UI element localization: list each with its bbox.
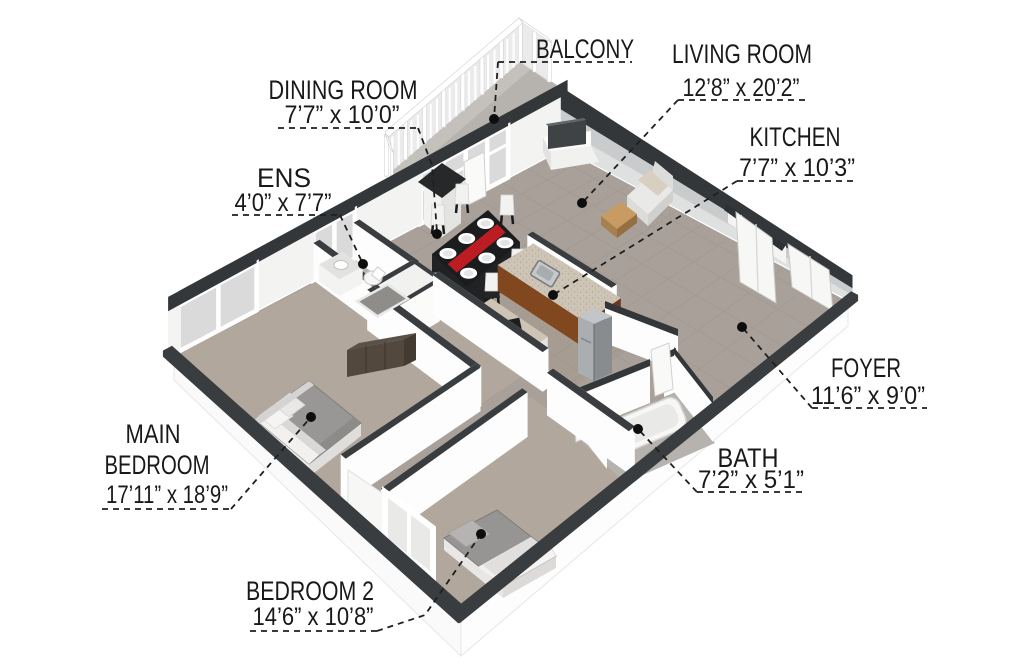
svg-text:17’11” x 18’9”: 17’11” x 18’9” bbox=[106, 481, 228, 509]
svg-text:FOYER: FOYER bbox=[831, 353, 901, 383]
svg-text:BALCONY: BALCONY bbox=[536, 34, 634, 64]
svg-text:4’0” x 7’7”: 4’0” x 7’7” bbox=[235, 189, 332, 217]
svg-text:BEDROOM: BEDROOM bbox=[105, 450, 210, 480]
svg-text:LIVING ROOM: LIVING ROOM bbox=[672, 39, 812, 69]
svg-text:7’2” x 5’1”: 7’2” x 5’1” bbox=[698, 466, 804, 494]
svg-text:BEDROOM 2: BEDROOM 2 bbox=[246, 576, 374, 606]
svg-text:11’6” x 9’0”: 11’6” x 9’0” bbox=[811, 382, 925, 410]
svg-text:7’7” x 10’0”: 7’7” x 10’0” bbox=[285, 101, 400, 129]
svg-text:7’7” x 10’3”: 7’7” x 10’3” bbox=[739, 154, 855, 182]
svg-text:14’6” x 10’8”: 14’6” x 10’8” bbox=[253, 603, 374, 631]
svg-text:12’8” x 20’2”: 12’8” x 20’2” bbox=[683, 74, 800, 102]
svg-text:MAIN: MAIN bbox=[126, 419, 181, 449]
svg-text:KITCHEN: KITCHEN bbox=[750, 122, 841, 152]
